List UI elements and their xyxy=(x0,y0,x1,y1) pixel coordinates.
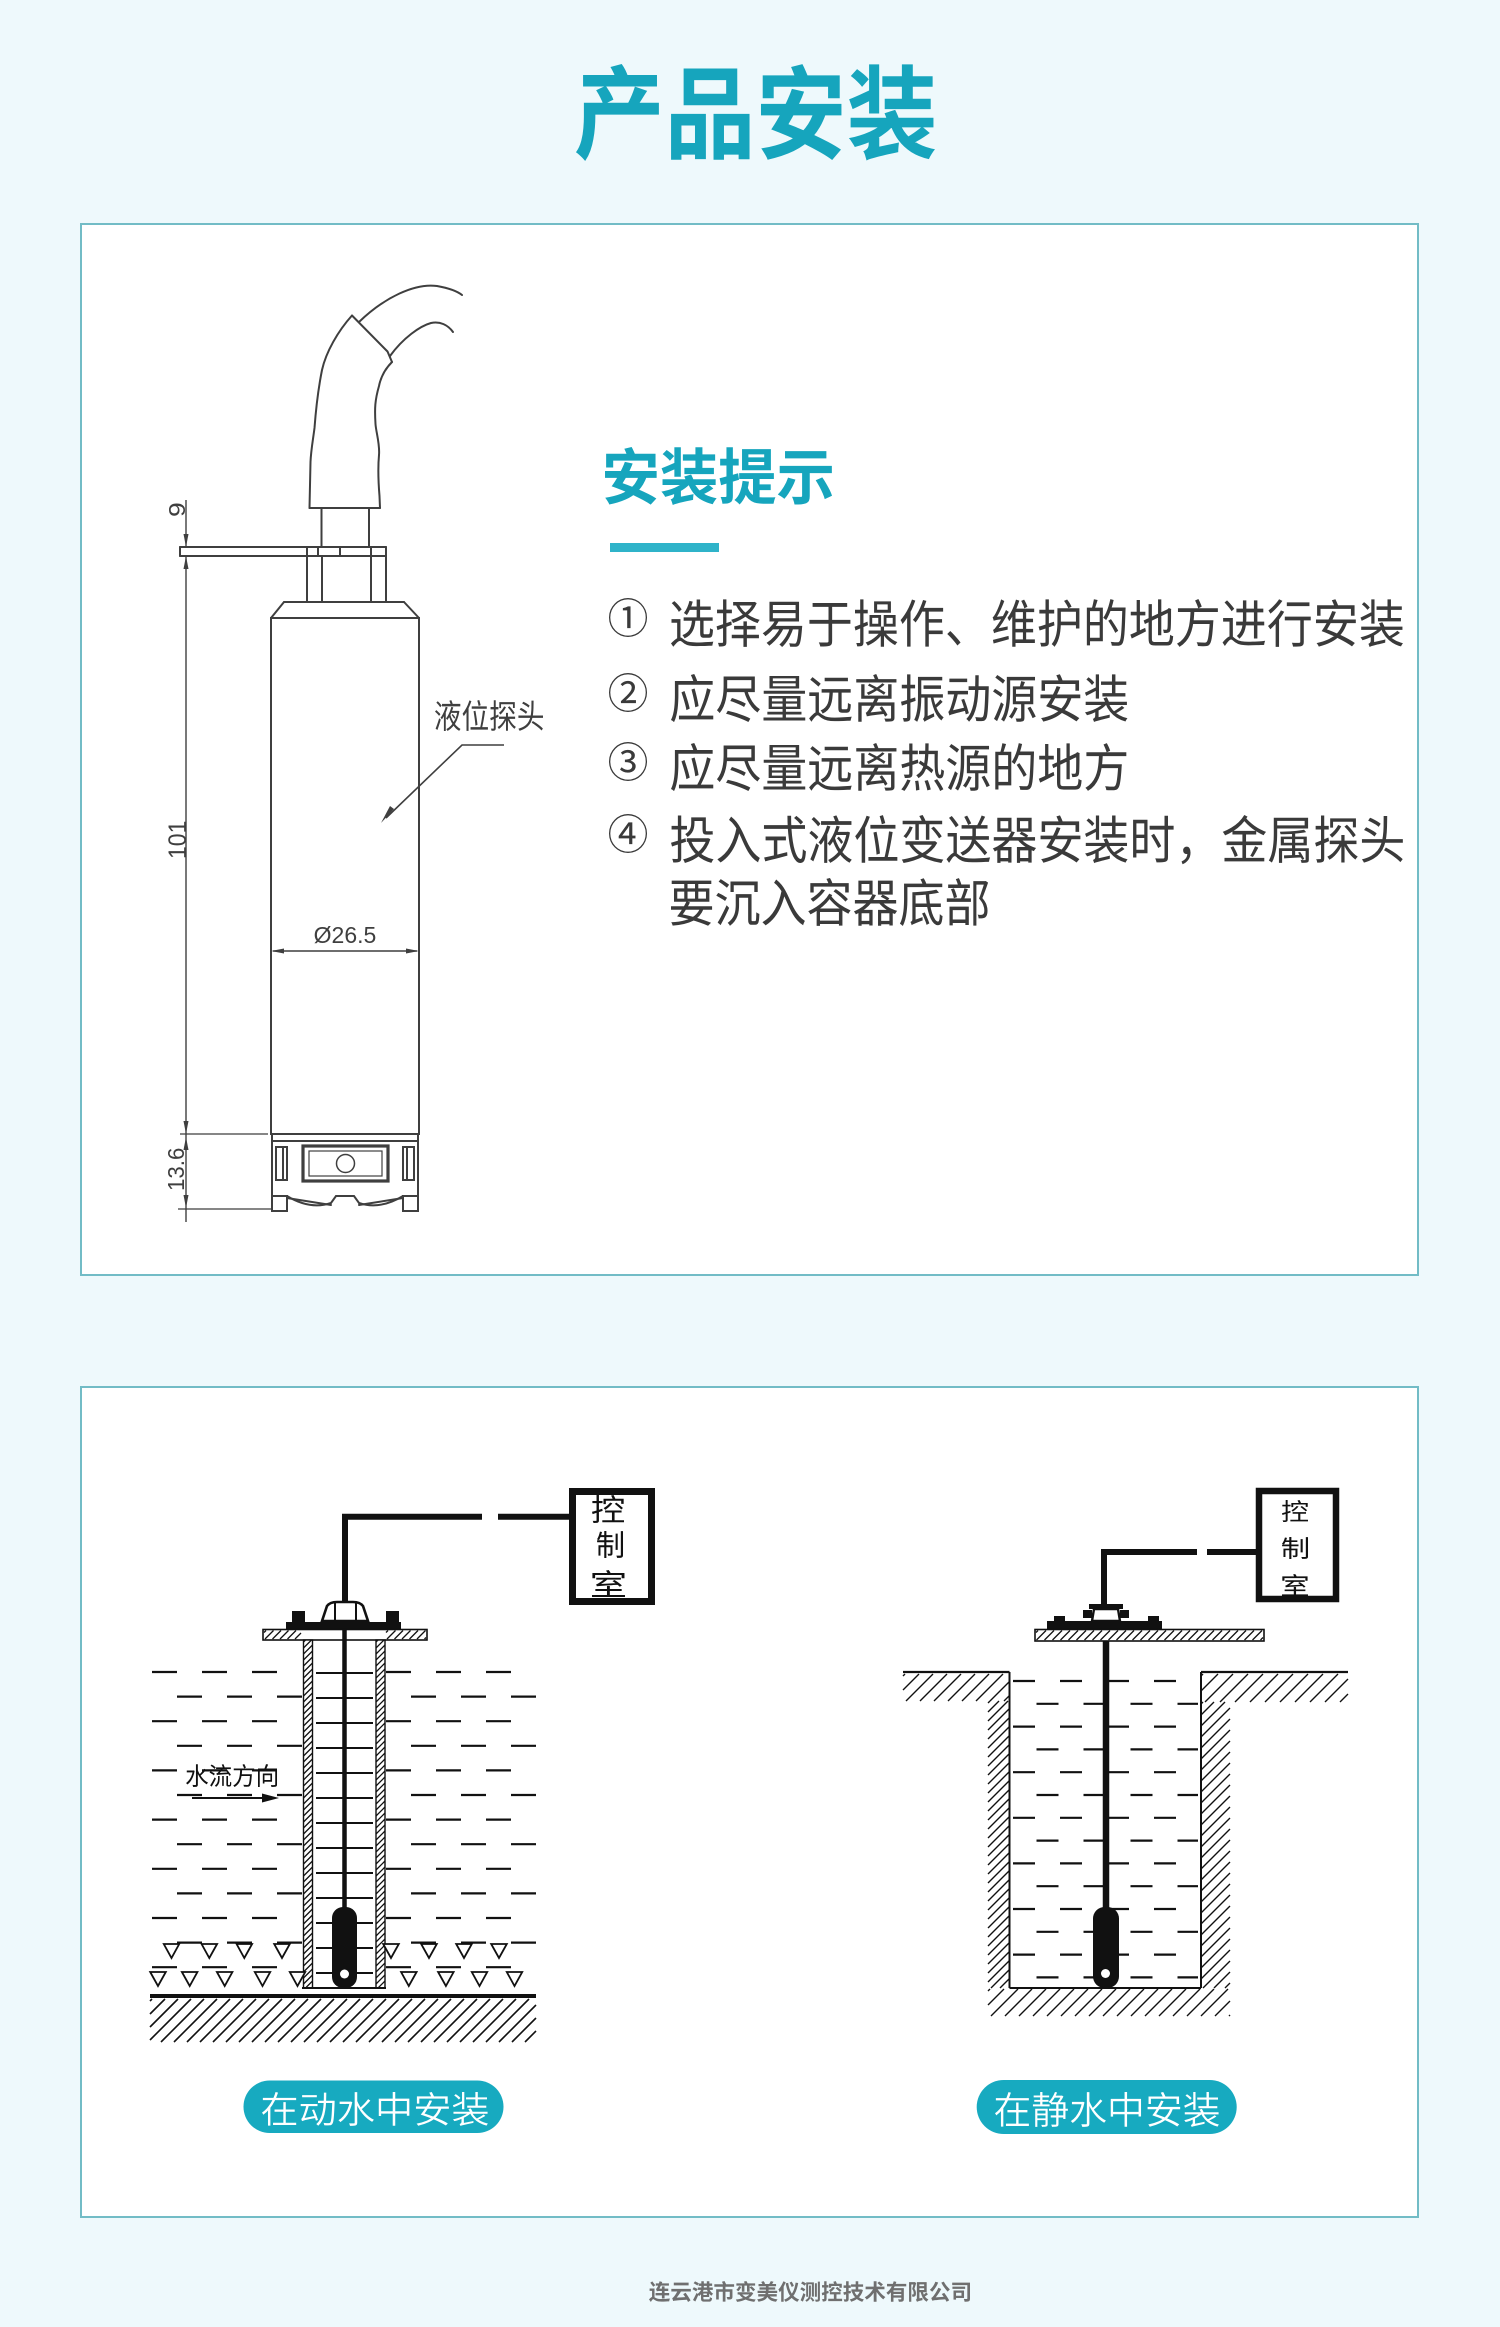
svg-text:101: 101 xyxy=(164,821,192,859)
svg-text:9: 9 xyxy=(166,502,191,517)
svg-text:13.6: 13.6 xyxy=(163,1148,189,1191)
svg-text:Ø26.5: Ø26.5 xyxy=(314,922,377,948)
